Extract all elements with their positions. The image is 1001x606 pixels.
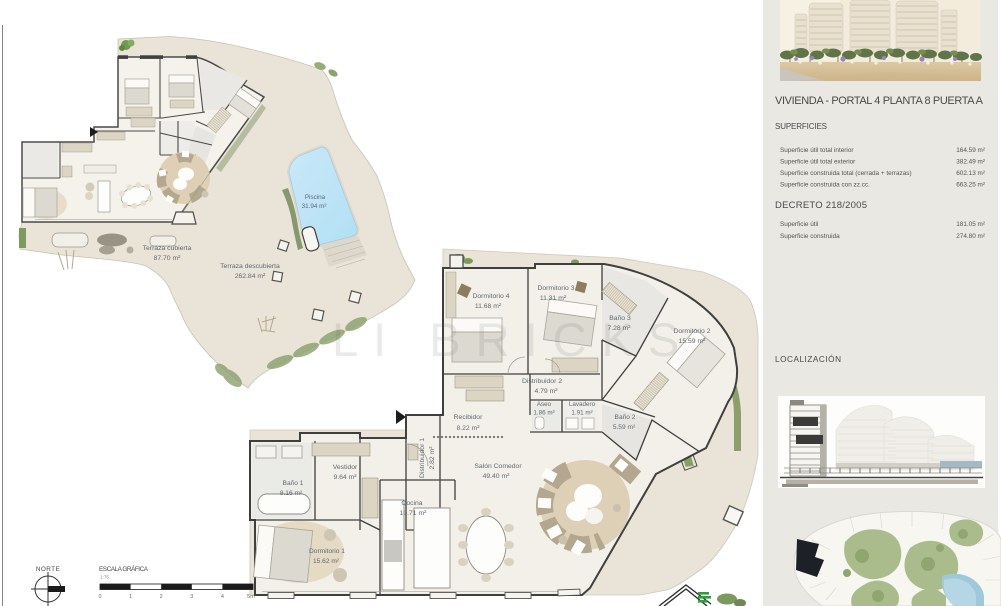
svg-text:Aseo: Aseo	[537, 401, 552, 408]
svg-text:Superficie útil total exterior: Superficie útil total exterior	[780, 159, 856, 166]
svg-text:Baño 2: Baño 2	[615, 414, 636, 421]
svg-text:Superficie construida: Superficie construida	[780, 233, 840, 240]
svg-text:5.59 m²: 5.59 m²	[613, 424, 636, 431]
svg-text:LI BRICKS: LI BRICKS	[332, 313, 694, 366]
svg-text:663.25 m²: 663.25 m²	[956, 182, 985, 189]
svg-text:1:75: 1:75	[100, 575, 109, 580]
svg-text:Distribuidor 1: Distribuidor 1	[419, 438, 426, 478]
svg-text:9.64 m²: 9.64 m²	[333, 474, 357, 481]
svg-text:5m: 5m	[247, 594, 255, 600]
svg-text:Dormitorio 1: Dormitorio 1	[309, 548, 345, 555]
svg-text:VIVIENDA - PORTAL 4 PLANTA 8: VIVIENDA - PORTAL 4 PLANTA 8 PUERTA A	[775, 95, 984, 107]
svg-text:Baño 1: Baño 1	[283, 480, 304, 487]
svg-text:4.79 m²: 4.79 m²	[534, 388, 558, 395]
svg-text:Lavadero: Lavadero	[569, 401, 596, 408]
svg-text:ESCALA GRÁFICA: ESCALA GRÁFICA	[99, 564, 149, 573]
svg-text:SUPERFICIES: SUPERFICIES	[775, 122, 827, 131]
svg-text:Dormitorio 4: Dormitorio 4	[472, 293, 509, 300]
svg-text:Superficie útil: Superficie útil	[780, 221, 818, 228]
svg-text:8.22 m²: 8.22 m²	[456, 425, 480, 432]
svg-text:DECRETO 218/2005: DECRETO 218/2005	[775, 200, 867, 211]
svg-text:262.84 m²: 262.84 m²	[235, 273, 266, 280]
svg-text:Vestidor: Vestidor	[333, 464, 358, 471]
svg-text:382.49 m²: 382.49 m²	[956, 159, 985, 166]
svg-text:87.70 m²: 87.70 m²	[154, 255, 182, 262]
svg-text:Piscina: Piscina	[305, 194, 326, 201]
svg-text:11.68 m²: 11.68 m²	[475, 303, 502, 310]
svg-text:Terraza descubierta: Terraza descubierta	[220, 263, 280, 270]
svg-text:164.59 m²: 164.59 m²	[956, 147, 985, 154]
svg-text:15.62 m²: 15.62 m²	[313, 558, 340, 565]
svg-text:Terraza cubierta: Terraza cubierta	[143, 245, 192, 252]
svg-text:602.13 m²: 602.13 m²	[956, 170, 985, 177]
svg-text:Distribuidor 2: Distribuidor 2	[522, 378, 562, 385]
svg-text:Superficie útil total interior: Superficie útil total interior	[780, 147, 854, 154]
svg-text:Superficie construida total (c: Superficie construida total (cerrada + t…	[780, 170, 912, 177]
svg-text:1: 1	[129, 594, 132, 600]
svg-text:Recibidor: Recibidor	[454, 414, 483, 421]
svg-text:2: 2	[160, 594, 163, 600]
svg-text:8.16 m²: 8.16 m²	[280, 490, 303, 497]
svg-text:Cocina: Cocina	[401, 500, 422, 507]
svg-text:3: 3	[190, 594, 193, 600]
svg-text:NORTE: NORTE	[36, 566, 60, 573]
svg-text:Superficie construida con zz.c: Superficie construida con zz.cc.	[780, 182, 870, 189]
svg-text:Salón Comedor: Salón Comedor	[474, 463, 522, 470]
svg-text:1.86 m²: 1.86 m²	[533, 410, 554, 417]
svg-text:10.71 m²: 10.71 m²	[400, 510, 428, 517]
svg-text:274.80 m²: 274.80 m²	[956, 233, 985, 240]
svg-text:4: 4	[221, 594, 224, 600]
svg-text:LOCALIZACIÓN: LOCALIZACIÓN	[775, 354, 841, 364]
svg-text:49.40 m²: 49.40 m²	[483, 473, 511, 480]
svg-text:0: 0	[98, 594, 101, 600]
svg-text:Dormitorio 3: Dormitorio 3	[537, 285, 574, 292]
svg-text:31.94 m²: 31.94 m²	[302, 203, 327, 210]
svg-text:11.31 m²: 11.31 m²	[540, 295, 567, 302]
svg-text:1.91 m²: 1.91 m²	[571, 410, 592, 417]
svg-text:2.82 m²: 2.82 m²	[429, 446, 436, 470]
svg-text:181.05 m²: 181.05 m²	[956, 221, 985, 228]
